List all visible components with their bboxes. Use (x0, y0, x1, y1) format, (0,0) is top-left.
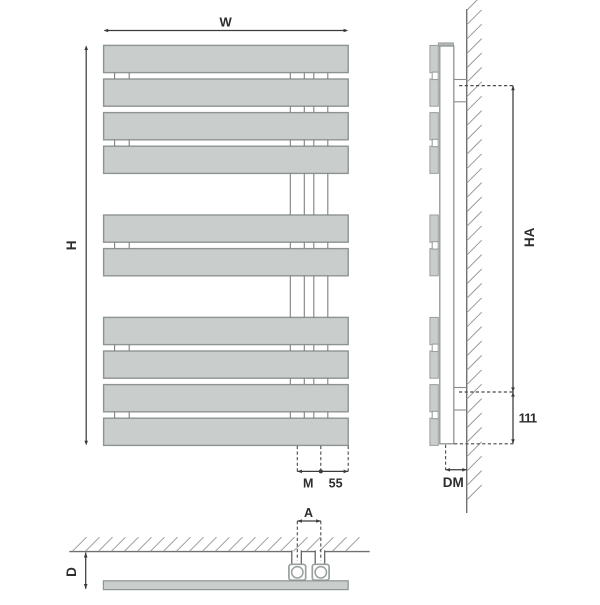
svg-text:DM: DM (443, 475, 464, 490)
svg-text:A: A (304, 506, 313, 520)
svg-text:W: W (220, 15, 233, 30)
svg-text:55: 55 (329, 477, 343, 491)
svg-text:HA: HA (522, 227, 537, 247)
svg-text:H: H (64, 240, 79, 250)
svg-text:D: D (64, 567, 79, 577)
svg-text:111: 111 (519, 411, 537, 426)
svg-text:M: M (303, 477, 313, 491)
